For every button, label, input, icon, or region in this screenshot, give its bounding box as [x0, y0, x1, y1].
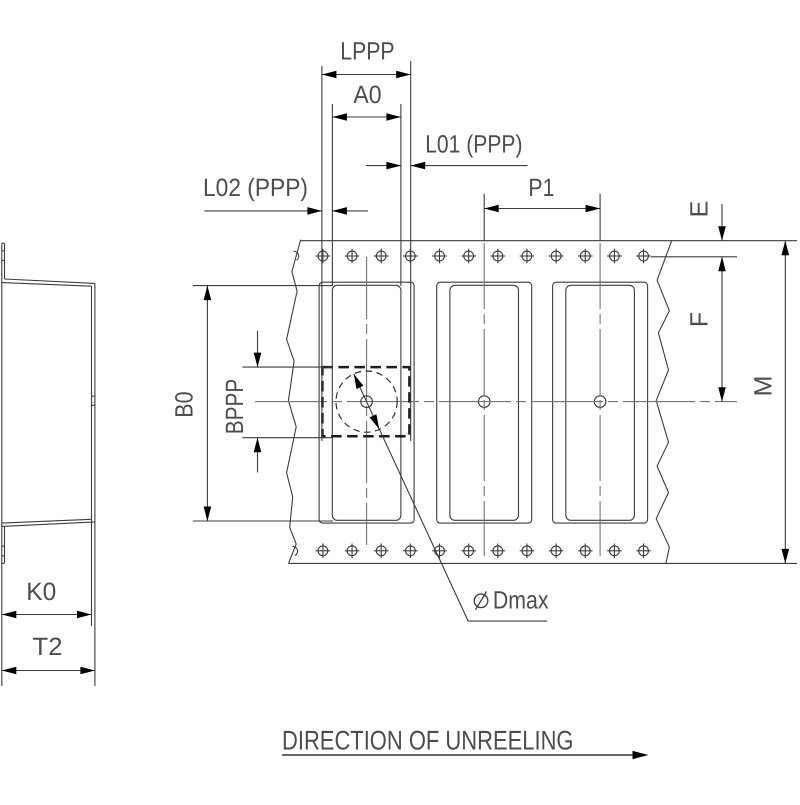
svg-text:LPPP: LPPP [340, 38, 394, 66]
svg-text:E: E [686, 201, 714, 218]
svg-text:M: M [750, 376, 778, 397]
svg-text:T2: T2 [33, 633, 63, 661]
svg-text:Dmax: Dmax [493, 587, 549, 615]
svg-text:L02 (PPP): L02 (PPP) [203, 174, 308, 202]
svg-text:B0: B0 [171, 392, 199, 418]
svg-text:A0: A0 [353, 81, 381, 109]
svg-text:P1: P1 [528, 174, 554, 202]
svg-text:F: F [686, 312, 714, 327]
svg-text:L01 (PPP): L01 (PPP) [425, 131, 522, 159]
svg-text:BPPP: BPPP [221, 379, 249, 435]
svg-text:K0: K0 [26, 578, 56, 606]
svg-text:DIRECTION OF UNREELING: DIRECTION OF UNREELING [282, 726, 574, 756]
